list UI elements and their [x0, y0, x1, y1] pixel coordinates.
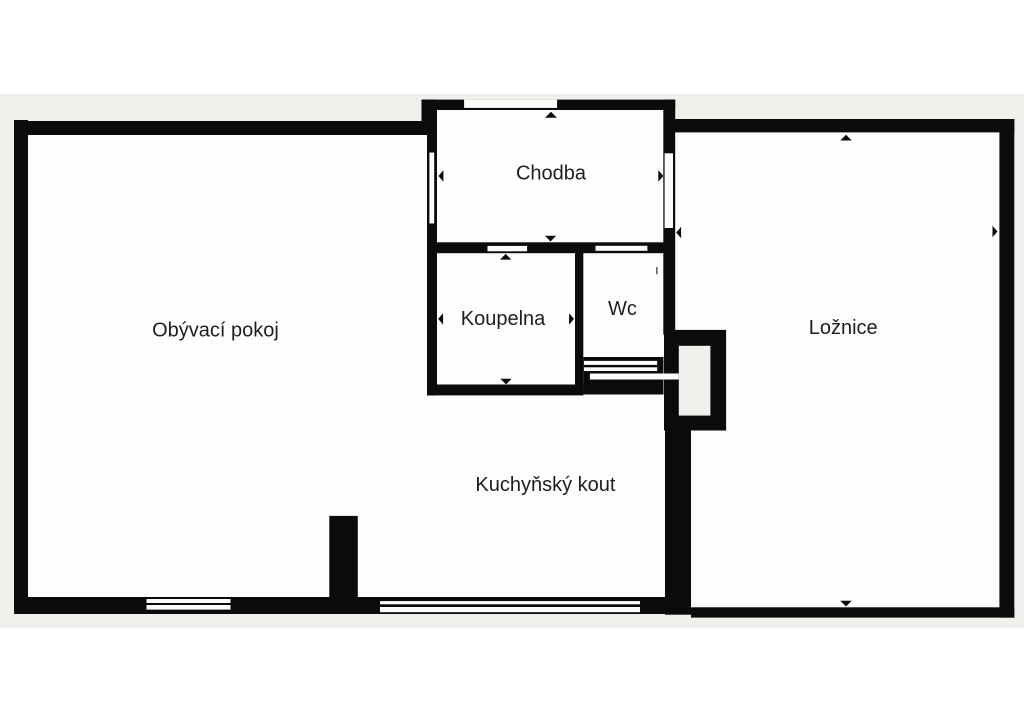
svg-text:Wc: Wc: [608, 298, 637, 320]
svg-text:Obývací pokoj: Obývací pokoj: [152, 320, 279, 342]
svg-text:Kuchyňský kout: Kuchyňský kout: [475, 474, 616, 496]
svg-text:Koupelna: Koupelna: [461, 308, 546, 330]
svg-text:Ložnice: Ložnice: [809, 317, 878, 339]
svg-text:Chodba: Chodba: [516, 163, 587, 185]
